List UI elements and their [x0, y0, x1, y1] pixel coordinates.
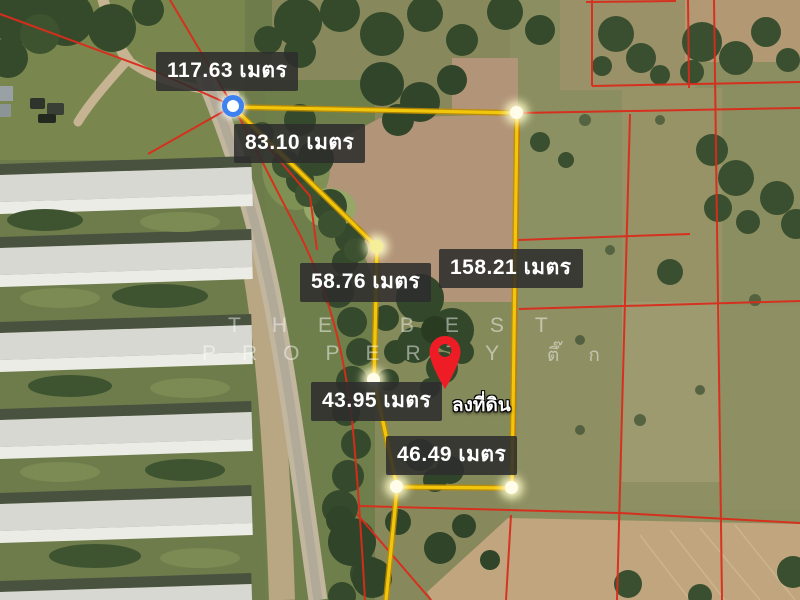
measurement-label-mid-left: 58.76 เมตร: [300, 263, 431, 302]
measurement-label-right: 158.21 เมตร: [439, 249, 583, 288]
vertex-marker-start[interactable]: [222, 95, 244, 117]
vertex-marker-top-right[interactable]: [510, 106, 523, 119]
measurement-label-bottom: 46.49 เมตร: [386, 436, 517, 475]
measurement-label-top: 117.63 เมตร: [156, 52, 298, 91]
vertex-marker-bottom-right[interactable]: [505, 481, 518, 494]
map-viewport[interactable]: THE BEST PROPERTY ตึ๊ก 117.63 เมตร 83.10…: [0, 0, 800, 600]
location-pin-icon[interactable]: [427, 333, 463, 390]
measurement-label-upper-left: 83.10 เมตร: [234, 124, 365, 163]
vertex-marker-bottom-left[interactable]: [390, 480, 403, 493]
pin-label: ลงที่ดิน: [452, 390, 511, 420]
measurement-label-lower-left: 43.95 เมตร: [311, 382, 442, 421]
vertex-marker-mid-left[interactable]: [370, 240, 383, 253]
